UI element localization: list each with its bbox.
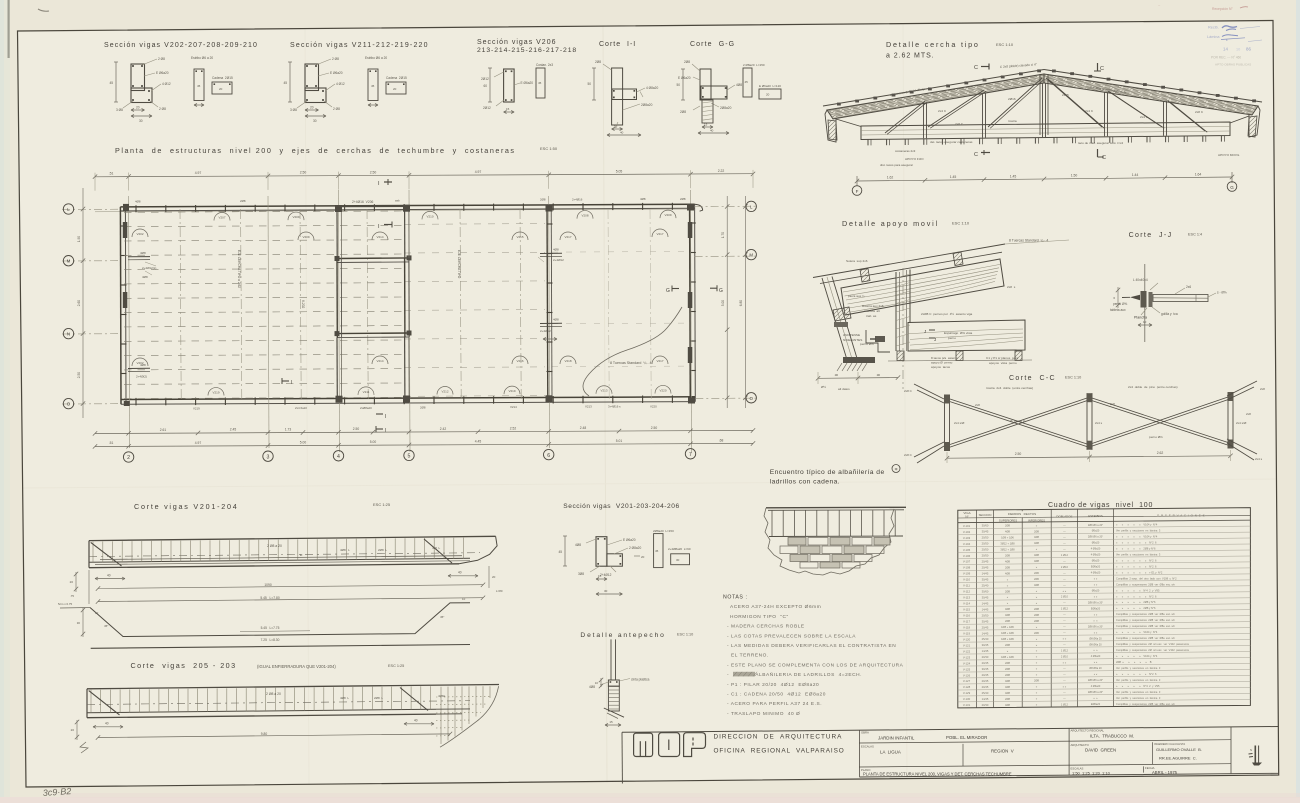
svg-text:30/45: 30/45 [982,643,989,647]
svg-text:2+4Ø(2): 2+4Ø(2) [136,375,147,379]
svg-text:4.97: 4.97 [195,171,202,175]
svg-text:» » » » »: » » » » » V104 y N°4 [1116,630,1158,634]
svg-text:—: — [1063,548,1066,551]
svg-text:1.50: 1.50 [1071,174,1078,178]
svg-text:2 Ø8 a 20: 2 Ø8 a 20 [267,544,282,548]
svg-text:—: — [1063,584,1066,587]
svg-text:2Ø8a20 L=150: 2Ø8a20 L=150 [653,529,674,533]
svg-text:1:50 1:25 1:20 1:10: 1:50 1:25 1:20 1:10 [1072,771,1111,776]
svg-text:2x8 C: 2x8 C [904,389,913,393]
svg-text:40: 40 [105,722,109,726]
svg-text:V-121: V-121 [963,643,971,647]
svg-text:20/30: 20/30 [982,703,989,707]
svg-text:4 Ø6a20: 4 Ø6a20 [1091,655,1101,658]
svg-text:2.62: 2.62 [1157,451,1164,455]
svg-text:V-109: V-109 [963,572,971,576]
svg-text:15: 15 [609,720,613,724]
svg-text:45: 45 [371,84,375,88]
svg-text:» » » » »: » » » » » V104 y N°4 [1116,535,1158,539]
svg-text:4Ø8: 4Ø8 [553,318,559,322]
svg-text:V-102: V-102 [963,530,971,534]
svg-text:9.80: 9.80 [261,732,268,736]
svg-text:» » » » »: » » » » » N°4 2 y V95 [1116,588,1160,592]
svg-text:C1 y P1 s/ planos para: C1 y P1 s/ planos para [986,356,1018,360]
svg-text:20: 20 [641,555,645,559]
svg-text:Corte G-G: Corte G-G [690,41,735,48]
svg-text:V202: V202 [136,232,143,236]
svg-text:4Ø8: 4Ø8 [1005,559,1010,563]
svg-text:POBL. EL MIRADOR: POBL. EL MIRADOR [946,735,987,740]
svg-text:2 Ø10: 2 Ø10 [1061,595,1069,599]
svg-text:Corte C-C: Corte C-C [1009,375,1056,382]
svg-text:Cumplillas y suspensores 2Ø: Cumplillas y suspensores 2Ø8 ver Ø8a esc… [1116,636,1176,640]
svg-text:4Ø8: 4Ø8 [142,275,148,279]
svg-text:4Ø8: 4Ø8 [1005,607,1010,611]
svg-text:Corte I-I: Corte I-I [599,41,636,48]
svg-text:14/45: 14/45 [982,649,989,653]
svg-text:2xØ8a20: 2xØ8a20 [360,406,372,410]
svg-text:—: — [1063,524,1066,527]
svg-text:EØ6a20: EØ6a20 [1091,566,1101,569]
svg-text:30: 30 [676,558,680,562]
svg-text:V-126: V-126 [963,673,971,677]
svg-text:» »: » » [1094,584,1098,587]
svg-text:Sección vigas V201-203-204-20: Sección vigas V201-203-204-206 [563,503,679,510]
svg-text:GUILLERMO OVALLE B.: GUILLERMO OVALLE B. [1156,747,1202,752]
svg-text:perno Ø⅜: perno Ø⅜ [860,342,874,346]
svg-text:2Ø8 Ø6 a 20°: 2Ø8 Ø6 a 20° [1088,625,1103,628]
svg-text:V213: V213 [585,405,592,409]
svg-text:DIRECCION DE ARQUITECTURA: DIRECCION DE ARQUITECTURA [714,734,843,741]
svg-text:V-129: V-129 [963,691,971,695]
svg-text:4Ø8 L: 4Ø8 L [340,548,350,552]
svg-text:V215: V215 [516,235,523,239]
svg-text:V217: V217 [564,235,571,239]
svg-text:2Ø8: 2Ø8 [680,110,686,114]
svg-text:ESC 1:10: ESC 1:10 [996,42,1014,47]
svg-text:» »: » » [1094,631,1098,634]
svg-text:Ver perfils y secciones en: Ver perfils y secciones en lámina 3 [1116,529,1161,533]
svg-text:2Ø8: 2Ø8 [595,60,601,64]
svg-text:20: 20 [219,87,223,91]
svg-text:2 Ø8: 2 Ø8 [158,57,165,61]
svg-text:45: 45 [655,549,659,553]
svg-text:M: M [749,253,753,258]
svg-text:2.50: 2.50 [300,171,307,175]
svg-text:50: 50 [676,83,680,87]
svg-text:taco de mad. asegurar cost. t=: taco de mad. asegurar cost. t=x4 [1078,141,1123,145]
svg-text:4 Ø6a20: 4 Ø6a20 [1091,554,1101,557]
svg-text:Ø6a20: Ø6a20 [1092,542,1100,545]
svg-text:V219: V219 [212,391,219,395]
svg-text:Cumplillas y suspensores 2Ø: Cumplillas y suspensores 2Ø8 ver Ø8a esc… [1116,624,1176,628]
svg-text:» » » » »: » » » » » » N°2 6 [1116,564,1157,568]
svg-text:2x4 s: 2x4 s [1140,115,1148,119]
svg-text:V217: V217 [656,232,663,236]
svg-text:s - Ø⅜: s - Ø⅜ [1217,291,1227,295]
svg-text:45: 45 [283,81,287,85]
svg-text:V214: V214 [510,405,517,409]
svg-text:dist. tacos para asegurar: dist. tacos para asegurar [880,163,913,167]
svg-text:25/40: 25/40 [982,584,989,588]
svg-text:20/50: 20/50 [982,542,989,546]
svg-text:V-130: V-130 [963,697,971,701]
svg-text:.90: .90 [834,373,839,377]
svg-text:Ver perfils y secciones en: Ver perfils y secciones en lámina 3 [1116,666,1161,670]
svg-text:8 Tuercas Standard ¼ - 4: 8 Tuercas Standard ¼ - 4 [610,361,652,365]
svg-text:V-123: V-123 [963,655,971,659]
svg-text:I: I [385,428,386,434]
svg-text:30: 30 [313,119,317,123]
svg-text:» » » » »: » » » » » » + E1 y N°2 [1116,570,1163,574]
svg-text:Cadena 2Ø15: Cadena 2Ø15 [212,76,233,80]
svg-text:SUPERIORES: SUPERIORES [999,519,1017,523]
svg-text:2x8: 2x8 [1246,412,1251,416]
svg-text:apoyos tacos: apoyos tacos [931,365,951,369]
svg-text:C: C [974,152,978,158]
svg-text:2 Ø10: 2 Ø10 [1061,655,1069,659]
svg-text:25/40: 25/40 [982,637,989,641]
svg-text:- MADERA CERCHAS ROBLE: - MADERA CERCHAS ROBLE [727,624,805,630]
svg-text:ESC 1:25: ESC 1:25 [373,502,391,507]
svg-text:2x4 6a10: 2x4 6a10 [295,406,307,410]
svg-text:1.90: 1.90 [77,236,81,242]
svg-text:5.00: 5.00 [300,440,307,444]
svg-text:» » » » »: » » » » » » N°2 6 [1116,558,1157,562]
svg-text:6: 6 [547,453,550,459]
svg-text:L=80: L=80 [496,589,503,593]
svg-text:14: 14 [1223,47,1228,52]
svg-text:2.45: 2.45 [230,428,237,432]
svg-text:2Ø6: 2Ø6 [1034,631,1039,635]
svg-text:cinta plástica: cinta plástica [631,678,650,682]
svg-text:trab as: trab as [866,314,877,318]
svg-text:Ø6a20: Ø6a20 [1092,530,1100,533]
svg-text:EJE CERCHA TIPO: EJE CERCHA TIPO [457,250,461,279]
svg-text:3+4Ø16 s: 3+4Ø16 s [608,405,621,409]
svg-text:2.42: 2.42 [440,427,447,431]
svg-text:1Ø8 + 1Ø6: 1Ø8 + 1Ø6 [1001,637,1014,641]
svg-text:perno Ø⅜: perno Ø⅜ [1149,435,1163,439]
svg-text:» » » » »: » » » » » 2Ø8 y N°6 [1116,606,1156,610]
svg-text:E Ø6a20 L=120: E Ø6a20 L=120 [759,84,781,88]
svg-text:4 Ø12: 4 Ø12 [162,82,171,86]
svg-text:2+4Ø12: 2+4Ø12 [540,329,551,333]
svg-text:V209: V209 [302,235,309,239]
svg-text:5.05: 5.05 [616,169,623,173]
svg-text:2x8: 2x8 [1110,402,1115,406]
svg-text:2Ø8: 2Ø8 [1034,529,1039,533]
svg-text:V-101: V-101 [963,524,971,528]
svg-text:EL TERRENO.: EL TERRENO. [731,653,769,659]
svg-text:40: 40 [458,571,462,575]
svg-text:1Ø8 + 1Ø6: 1Ø8 + 1Ø6 [1001,536,1014,540]
svg-text:2Ø8 » » » »: 2Ø8 » » » » » B [1116,660,1152,664]
svg-text:» » » » »: » » » » » V104 y N°4 [1116,654,1158,658]
svg-text:4 Ø6a20: 4 Ø6a20 [1091,548,1101,551]
svg-text:« «: « « [1094,613,1098,616]
svg-text:3c9·B2: 3c9·B2 [42,786,71,798]
svg-text:Cadena 2Ø15: Cadena 2Ø15 [386,76,407,80]
svg-text:Ø6a20: Ø6a20 [1092,560,1100,563]
svg-text:2 Ø8: 2 Ø8 [333,107,340,111]
svg-text:2x4 s/Ø: 2x4 s/Ø [1236,421,1247,425]
svg-text:2Ø8 L: 2Ø8 L [374,696,383,700]
svg-text:« «: « « [1094,578,1098,581]
svg-text:—: — [1063,673,1066,676]
svg-text:riostra: riostra [1008,119,1017,123]
svg-text:2Ø8: 2Ø8 [420,406,426,410]
svg-text:ARQUITECTO REGIONAL: ARQUITECTO REGIONAL [1071,729,1105,733]
svg-text:2Ø12: 2Ø12 [481,77,489,81]
svg-text:2Ø8: 2Ø8 [1034,613,1039,617]
svg-text:Ø8 Ø6a 20: Ø8 Ø6a 20 [1089,637,1102,640]
svg-text:JARDIN INFANTIL: JARDIN INFANTIL [878,736,915,741]
svg-text:ESC 1:25: ESC 1:25 [388,664,404,668]
svg-text:2x8: 2x8 [975,403,980,407]
svg-text:1.73: 1.73 [285,428,292,432]
svg-text:30: 30 [77,621,81,625]
svg-text:30: 30 [139,119,143,123]
svg-text:- LAS MEDIDAS DEBERA VERIFICAR: - LAS MEDIDAS DEBERA VERIFICARLAS EL CON… [727,643,896,649]
svg-text:V-124: V-124 [963,661,971,665]
svg-text:O: O [749,396,753,401]
svg-text:V-120: V-120 [963,637,971,641]
svg-text:» »: » » [1094,661,1098,664]
svg-text:5.01: 5.01 [616,439,623,443]
svg-text:2.50: 2.50 [651,426,658,430]
svg-text:2: 2 [127,455,130,461]
svg-text:G: G [1230,185,1234,190]
svg-text:2x4 s: 2x4 s [1255,457,1263,461]
svg-text:V-106: V-106 [963,554,971,558]
svg-text:2x6: 2x6 [1186,285,1191,289]
svg-text:Estribo Ø6 a 20: Estribo Ø6 a 20 [191,56,213,60]
svg-text:40: 40 [107,574,111,578]
svg-text:4Ø8: 4Ø8 [140,251,146,255]
svg-text:E Ø6a20: E Ø6a20 [623,538,636,542]
svg-text:Φ: Φ [895,468,898,472]
svg-text:—: — [1063,644,1066,647]
svg-text:2Ø12: 2Ø12 [483,106,491,110]
svg-text:APOYO FIJO: APOYO FIJO [905,157,924,161]
svg-text:OBRA: OBRA [861,731,869,735]
svg-text:15: 15 [598,574,602,578]
svg-text:5.00: 5.00 [370,440,377,444]
svg-text:ACERO A37-24H EXCEPTO Ø6mm: ACERO A37-24H EXCEPTO Ø6mm [730,604,821,610]
svg-text:V-116: V-116 [963,614,971,618]
svg-text:10: 10 [95,611,99,615]
svg-text:Corte vigas 205 - 203: Corte vigas 205 - 203 [131,661,237,670]
svg-text:perno: perno [948,336,956,340]
svg-text:2x4 s/Ø: 2x4 s/Ø [954,421,965,425]
svg-text:4Ø8: 4Ø8 [1034,541,1039,545]
svg-text:- ESTE PLANO SE COMPLEMENTA CO: - ESTE PLANO SE COMPLEMENTA CON LOS DE A… [727,662,904,668]
svg-text:» »: » » [1093,649,1098,652]
svg-text:45°: 45° [440,615,444,619]
svg-text:- LAS COTAS PREVALECEN SOBRE L: - LAS COTAS PREVALECEN SOBRE LA ESCALA [727,633,856,639]
svg-text:2x8 s: 2x8 s [1007,285,1016,289]
svg-text:V219: V219 [193,407,200,411]
svg-text:ANOTENSE: ANOTENSE [843,333,860,337]
svg-text:4Ø8: 4Ø8 [1005,530,1010,534]
svg-text:« »: « » [1063,684,1067,688]
svg-text:Cumplillas y suspensores 2Ø: Cumplillas y suspensores 2Ø8 ver Ø8a esc… [1116,612,1176,616]
svg-text:- P1 : PILAR 20/20 4Ø12 EØ8a: - P1 : PILAR 20/20 4Ø12 EØ8a20 [727,682,819,688]
svg-text:» »: » » [1093,697,1098,700]
svg-text:20: 20 [136,106,140,110]
svg-text:« »: « » [1063,637,1067,641]
svg-text:Cumplillas 2 susp. del otro: Cumplillas 2 susp. del otro lado con V10… [1116,576,1177,580]
svg-text:alt datos: alt datos [838,387,850,391]
svg-text:45°: 45° [104,624,108,628]
svg-text:costaneras 2x3: costaneras 2x3 [895,149,916,153]
svg-text:2Ø6: 2Ø6 [1034,571,1039,575]
svg-text:3 Ø8: 3 Ø8 [290,108,297,112]
svg-text:V209: V209 [292,215,299,219]
svg-text:ARQUITECTO: ARQUITECTO [1071,743,1090,747]
svg-text:2Ø8 Ø6 a 20°: 2Ø8 Ø6 a 20° [1088,536,1103,539]
svg-text:—: — [1063,632,1066,635]
svg-text:HORMIGON TIPO "C": HORMIGON TIPO "C" [730,614,789,620]
svg-text:1Ø8 + 1Ø6: 1Ø8 + 1Ø6 [1001,655,1014,659]
svg-text:2Ø8 L: 2Ø8 L [378,548,387,552]
svg-text:1.64: 1.64 [1195,172,1202,176]
svg-text:2Ø8 Ø6 a 20°: 2Ø8 Ø6 a 20° [1088,691,1103,694]
svg-text:2x8: 2x8 [1260,387,1265,391]
svg-text:pieza aux ¾: pieza aux ¾ [848,294,865,298]
svg-text:20/45: 20/45 [982,679,989,683]
svg-text:20/50: 20/50 [982,554,989,558]
svg-text:4 Ø8a20: 4 Ø8a20 [646,86,658,90]
svg-text:Detalle apoyo movil: Detalle apoyo movil [842,219,939,228]
svg-text:Planta de estructuras nivel: Planta de estructuras nivel 200 y ejes d… [115,146,516,155]
svg-text:60: 60 [483,84,487,88]
svg-text:20: 20 [766,93,770,97]
svg-text:V220: V220 [659,388,666,392]
svg-text:2 Ø8 a 20: 2 Ø8 a 20 [266,692,281,696]
svg-text:2Ø8: 2Ø8 [1005,643,1010,647]
svg-text:20/30: 20/30 [982,655,989,659]
svg-text:1 Ø12: 1 Ø12 [1061,649,1069,653]
svg-text:2Ø8: 2Ø8 [680,197,686,201]
svg-text:20/45: 20/45 [982,673,989,677]
svg-text:Recepción N°: Recepción N° [1212,7,1233,11]
svg-text:2 Ø8a20 L=150: 2 Ø8a20 L=150 [743,63,765,67]
svg-text:1Ø8 + 1Ø6: 1Ø8 + 1Ø6 [1001,625,1014,629]
svg-text:2+4Ø12: 2+4Ø12 [600,573,612,577]
svg-text:Ver perfils y secciones en: Ver perfils y secciones en lámina 3 [1116,553,1161,557]
svg-text:.51: .51 [109,171,114,175]
svg-text:2 Ø10: 2 Ø10 [1061,565,1069,569]
svg-text:20/45: 20/45 [982,566,989,570]
svg-text:50: 50 [587,82,591,86]
svg-text:V211: V211 [363,390,370,394]
svg-text:V213: V213 [600,389,607,393]
svg-text:2Ø8: 2Ø8 [1005,619,1010,623]
svg-text:2x8 C: 2x8 C [1195,110,1204,114]
svg-text:45: 45 [197,84,201,88]
svg-text:4Ø8: 4Ø8 [553,248,559,252]
svg-text:DOBLADOS: DOBLADOS [1056,515,1072,519]
svg-text:2Ø8 Ø6 a 20°: 2Ø8 Ø6 a 20° [1088,601,1103,604]
svg-text:V218: V218 [564,359,571,363]
svg-text:2.48: 2.48 [580,426,587,430]
svg-text:Sección vigas V202-207-208-209: Sección vigas V202-207-208-209-210 [104,42,258,49]
svg-text:2.60: 2.60 [77,300,81,306]
svg-text:45: 45 [538,81,542,85]
svg-text:.75: .75 [70,594,74,598]
svg-text:apoyos vista perno: apoyos vista perno [989,361,1017,365]
svg-text:V-127: V-127 [963,679,971,683]
svg-text:ILTA. TRABUCCO M.: ILTA. TRABUCCO M. [1090,734,1134,739]
svg-text:30/45: 30/45 [982,530,989,534]
svg-text:FIERROS RECTOS: FIERROS RECTOS [1008,512,1036,516]
svg-text:2Ø8a20: 2Ø8a20 [720,106,732,110]
svg-text:4 Ø6a20: 4 Ø6a20 [1091,685,1101,688]
svg-text:Encuentro típico de albañilerí: Encuentro típico de albañilería de [770,469,885,476]
svg-text:N: N [67,332,70,337]
svg-text:2+4Ø8a20 L=90: 2+4Ø8a20 L=90 [668,547,691,551]
svg-text:Cumplillas y suspensores 2Ø: Cumplillas y suspensores 2Ø8 ver Ø8a esc… [1116,702,1176,706]
svg-text:2 Ø8: 2 Ø8 [332,57,339,61]
svg-text:1.62: 1.62 [887,176,894,180]
svg-text:4Ø8: 4Ø8 [1005,679,1010,683]
svg-text:14/45: 14/45 [982,631,989,635]
svg-text:V-122: V-122 [963,649,971,653]
svg-text:4Ø8: 4Ø8 [640,197,646,201]
svg-text:30/60: 30/60 [982,590,989,594]
svg-text:1090: 1090 [264,583,272,587]
svg-text:1 Ø12: 1 Ø12 [1061,607,1069,611]
svg-text:4Ø8: 4Ø8 [135,200,141,204]
svg-text:45: 45 [109,81,113,85]
svg-text:1.70: 1.70 [721,232,725,238]
svg-text:V-104: V-104 [963,542,971,546]
svg-text:2.50: 2.50 [370,170,377,174]
svg-text:muesca alt: muesca alt [864,309,880,313]
svg-text:4Ø8: 4Ø8 [1005,685,1010,689]
svg-text:V-112: V-112 [963,590,971,594]
svg-text:ladrillos con cadena.: ladrillos con cadena. [770,479,840,486]
svg-text:ESC 1:10: ESC 1:10 [677,633,693,637]
svg-text:20/45: 20/45 [982,560,989,564]
svg-text:86: 86 [1246,47,1251,52]
svg-text:C: C [1102,155,1106,161]
svg-text:30/45: 30/45 [982,578,989,582]
svg-text:4Ø8: 4Ø8 [1005,571,1010,575]
svg-text:2Ø8: 2Ø8 [1034,607,1039,611]
svg-text:3Ø12 + 1Ø8: 3Ø12 + 1Ø8 [1000,547,1015,551]
svg-text:—: — [1063,620,1066,623]
svg-text:—: — [1063,602,1066,605]
svg-text:2+4Ø12(L): 2+4Ø12(L) [142,266,156,270]
svg-text:RR.EE.AGUIRRE C.: RR.EE.AGUIRRE C. [1159,756,1197,761]
svg-text:2Ø8: 2Ø8 [1005,589,1010,593]
svg-text:V-118: V-118 [963,626,971,630]
svg-text:ESTRIBOS: ESTRIBOS [1088,514,1103,518]
svg-text:J: J [924,329,926,334]
svg-text:4Ø8: 4Ø8 [1005,703,1010,707]
svg-text:20: 20 [492,575,496,579]
svg-text:14/45: 14/45 [982,607,989,611]
svg-text:2x4 s: 2x4 s [1095,421,1103,425]
svg-text:5.45 L=7.75: 5.45 L=7.75 [261,626,280,630]
svg-text:4.45: 4.45 [475,440,482,444]
svg-text:V-202: V-202 [301,300,305,309]
svg-text:4Ø8: 4Ø8 [1034,535,1039,539]
svg-text:Corte J-J: Corte J-J [1129,232,1173,239]
